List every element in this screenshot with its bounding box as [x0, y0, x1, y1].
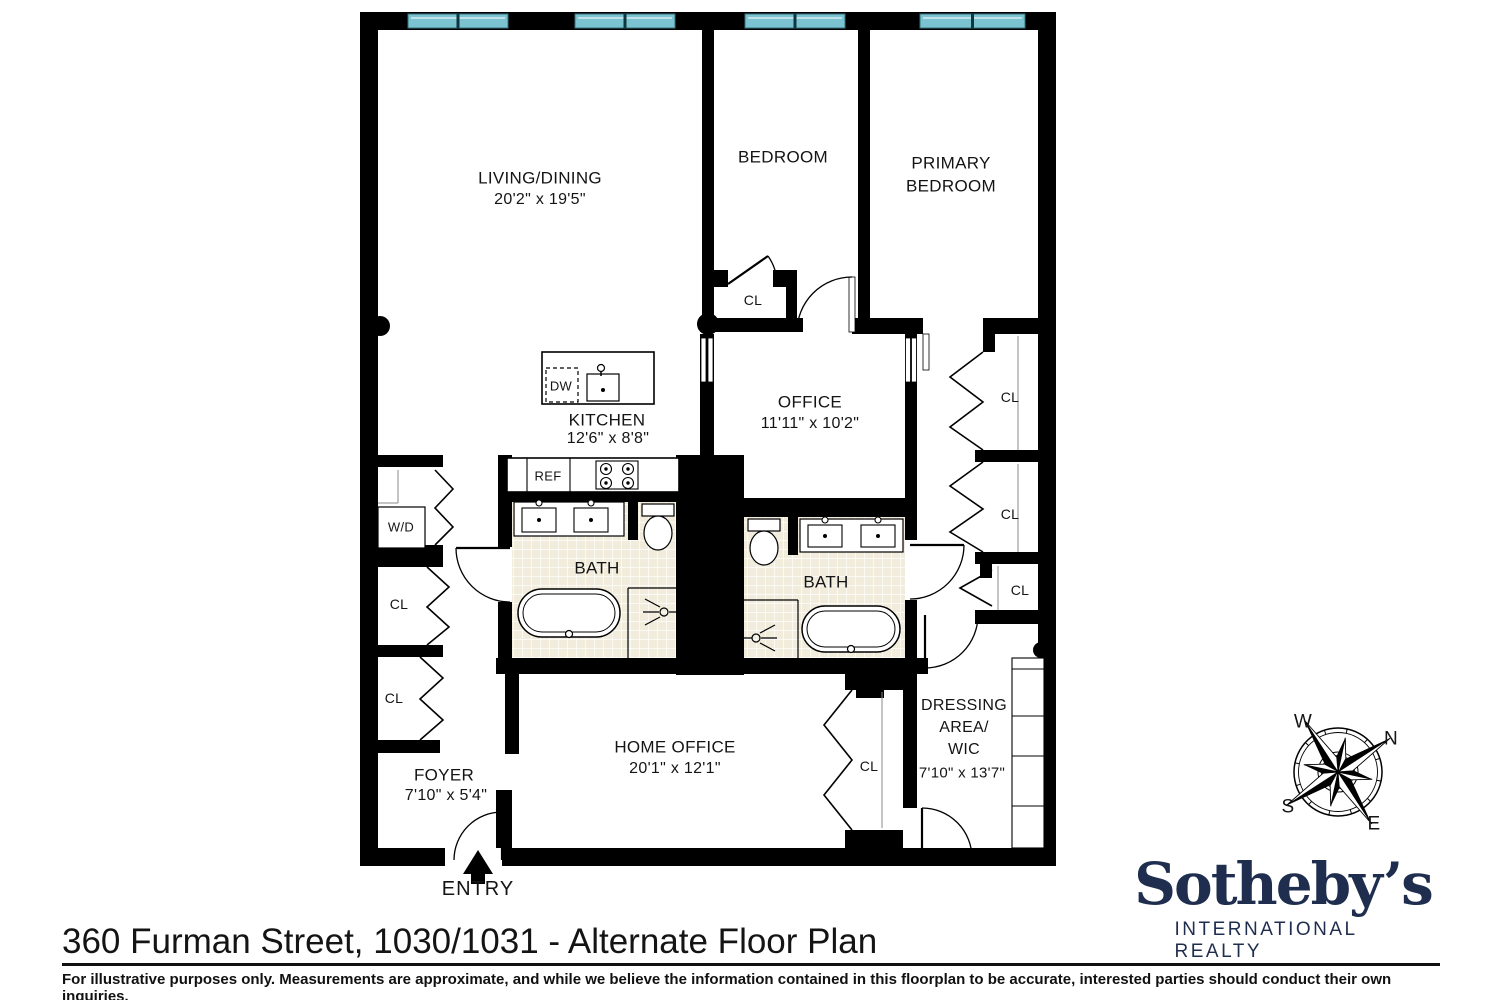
bathtub-icon: [802, 606, 900, 653]
closet-label-right-2: CL: [1001, 507, 1020, 521]
window: [920, 13, 1025, 29]
closet-label-hall-lower: CL: [385, 691, 404, 705]
toilet-icon: [748, 519, 780, 565]
room-dims-home-office: 20'1" x 12'1": [629, 761, 721, 777]
closet-label-bedroom: CL: [744, 293, 763, 307]
vanity-sink-icon: [800, 517, 903, 552]
compass-label-west: W: [1294, 713, 1312, 732]
room-label-living-dining: LIVING/DINING: [478, 170, 602, 187]
dressing-shelves: [1012, 658, 1044, 848]
fixture-label-dishwasher: DW: [550, 380, 572, 393]
bathtub-icon: [518, 589, 620, 638]
closet-label-home-office: CL: [860, 759, 879, 773]
room-label-dressing-line3: WIC: [948, 742, 980, 758]
room-label-primary-bedroom-line2: BEDROOM: [906, 178, 996, 195]
window: [408, 13, 508, 29]
disclaimer-text: For illustrative purposes only. Measurem…: [62, 971, 1442, 1000]
fixture-label-refrigerator: REF: [535, 470, 562, 483]
room-label-foyer: FOYER: [414, 767, 474, 784]
vanity-sink-icon: [514, 500, 624, 536]
kitchen-counter: [507, 458, 679, 492]
room-label-dressing-line2: AREA/: [939, 720, 989, 736]
closet-label-right-3: CL: [1011, 583, 1030, 597]
footer-divider: [62, 963, 1440, 966]
room-label-home-office: HOME OFFICE: [614, 739, 735, 756]
sothebys-logo: Sotheby’s: [1134, 850, 1432, 918]
toilet-icon: [642, 504, 674, 550]
room-label-bath-left: BATH: [574, 560, 619, 577]
floorplan-page: LIVING/DINING 20'2" x 19'5" BEDROOM PRIM…: [0, 0, 1500, 1000]
room-label-bedroom: BEDROOM: [738, 149, 828, 166]
room-dims-foyer: 7'10" x 5'4": [405, 788, 487, 804]
window: [745, 13, 845, 29]
room-label-office: OFFICE: [778, 394, 842, 411]
room-label-kitchen: KITCHEN: [569, 412, 646, 429]
sothebys-tagline: INTERNATIONAL REALTY: [1175, 919, 1392, 963]
room-dims-office: 11'11" x 10'2": [761, 416, 859, 432]
room-dims-dressing: 7'10" x 13'7": [919, 766, 1005, 781]
compass-label-north: N: [1384, 730, 1398, 749]
fixture-label-washer-dryer: W/D: [388, 521, 414, 534]
room-label-bath-right: BATH: [803, 574, 848, 591]
room-label-dressing-line1: DRESSING: [921, 698, 1007, 714]
page-title: 360 Furman Street, 1030/1031 - Alternate…: [62, 922, 877, 962]
stove-icon: [596, 461, 638, 489]
compass-rose: [1252, 686, 1424, 858]
room-dims-kitchen: 12'6" x 8'8": [567, 431, 649, 447]
entry-label: ENTRY: [442, 879, 514, 899]
compass-label-south: S: [1282, 798, 1295, 817]
compass-label-east: E: [1368, 815, 1381, 834]
room-label-primary-bedroom-line1: PRIMARY: [911, 155, 990, 172]
window: [575, 13, 675, 29]
room-dims-living-dining: 20'2" x 19'5": [494, 192, 586, 208]
closet-label-hall-upper: CL: [390, 597, 409, 611]
closet-label-right-1: CL: [1001, 390, 1020, 404]
